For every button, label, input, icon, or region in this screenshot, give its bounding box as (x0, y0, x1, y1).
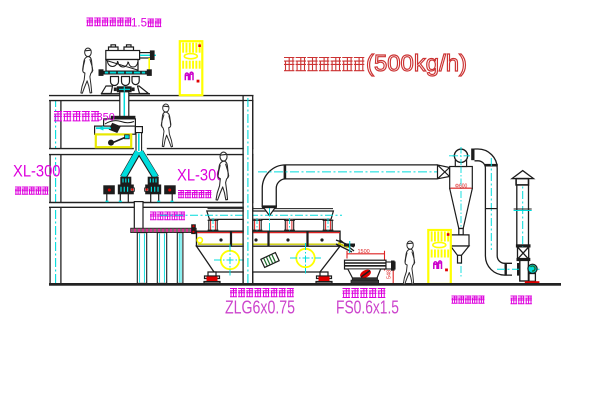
svg-text:XL-300: XL-300 (13, 163, 61, 181)
svg-text:350: 350 (97, 112, 115, 124)
svg-text:1.5: 1.5 (131, 18, 147, 30)
svg-text:Φ600: Φ600 (455, 183, 468, 189)
svg-text:XL-300: XL-300 (177, 167, 225, 185)
svg-text:(500kg/h): (500kg/h) (366, 50, 467, 76)
svg-text:548: 548 (387, 270, 393, 279)
svg-text:FS0.6x1.5: FS0.6x1.5 (336, 298, 399, 318)
svg-text:1500: 1500 (358, 249, 370, 255)
svg-text:ZLG6x0.75: ZLG6x0.75 (225, 298, 295, 318)
